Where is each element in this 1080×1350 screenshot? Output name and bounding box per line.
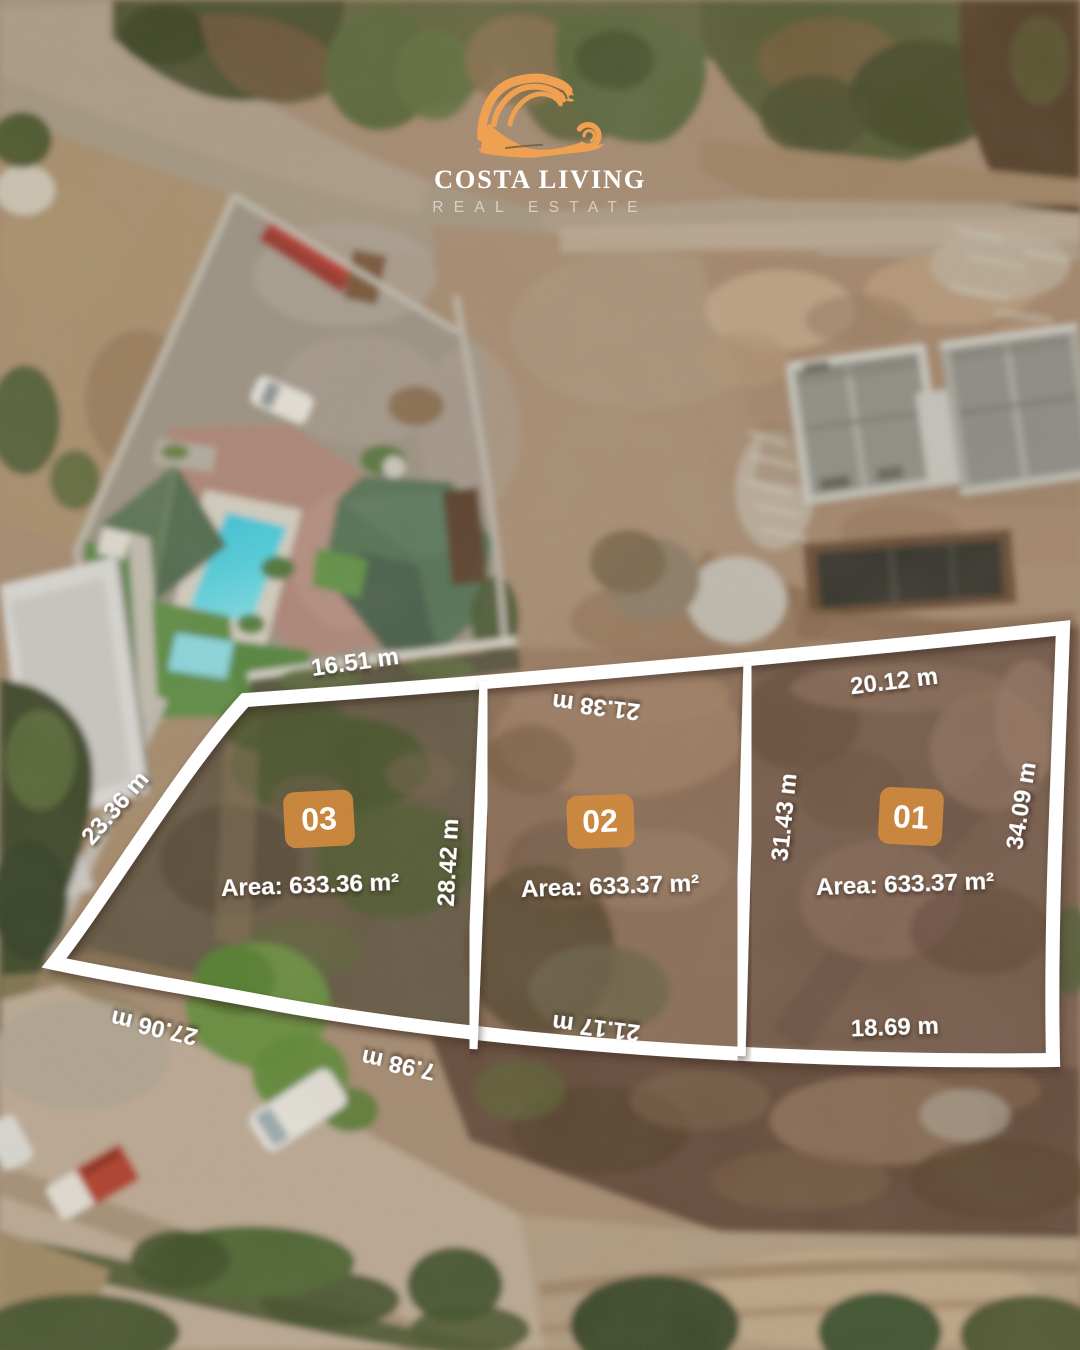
svg-text:02: 02 xyxy=(582,802,619,839)
svg-text:28.42 m: 28.42 m xyxy=(433,818,465,907)
svg-text:REAL ESTATE: REAL ESTATE xyxy=(432,199,648,216)
svg-text:18.69 m: 18.69 m xyxy=(850,1012,939,1042)
svg-text:03: 03 xyxy=(300,800,337,838)
svg-text:01: 01 xyxy=(892,798,929,836)
svg-text:COSTA LIVING: COSTA LIVING xyxy=(434,164,646,194)
